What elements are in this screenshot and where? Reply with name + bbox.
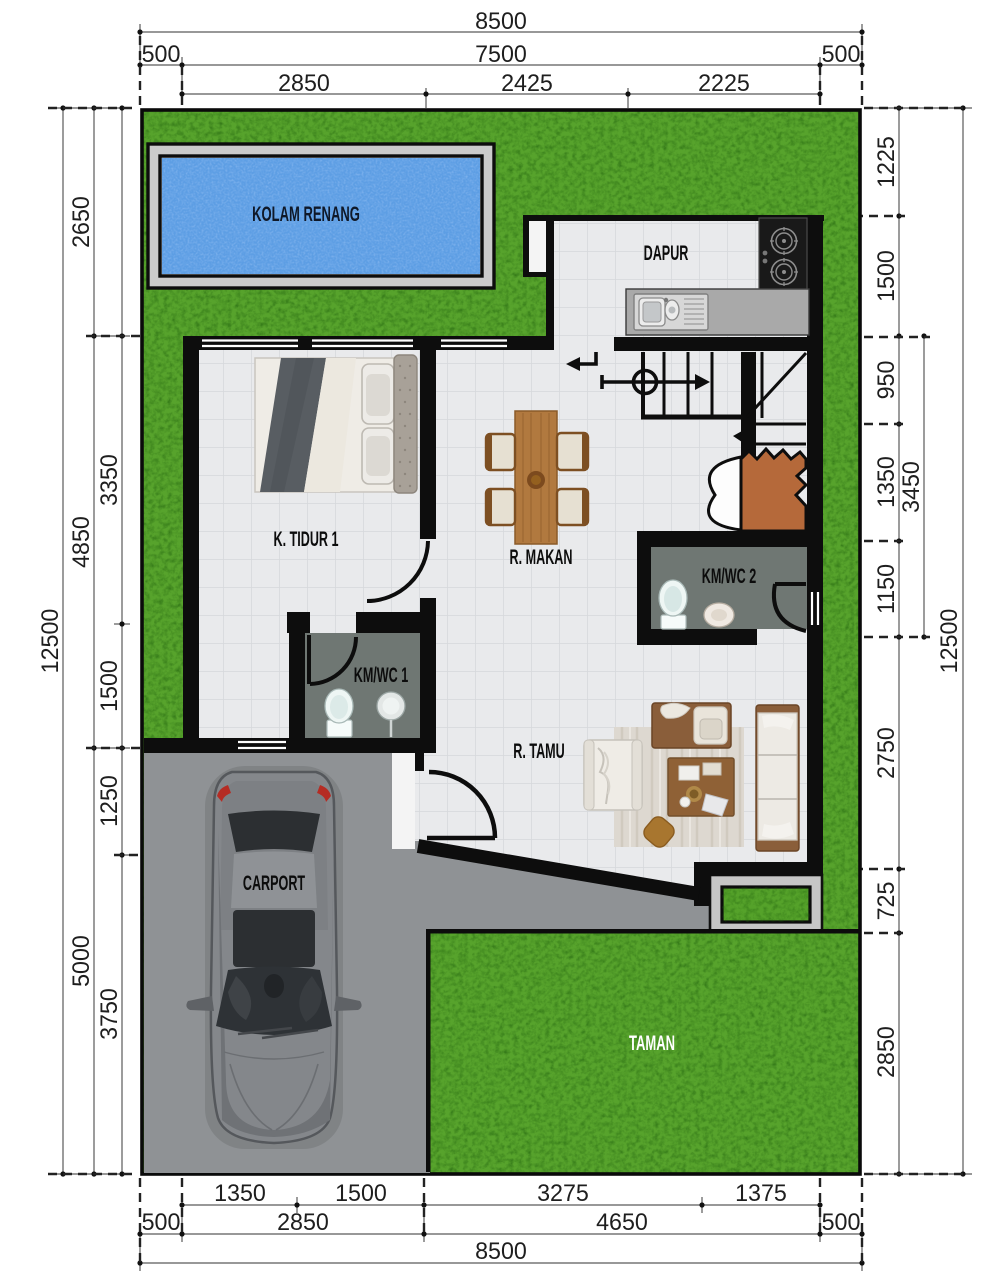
svg-text:1250: 1250: [97, 775, 123, 827]
svg-text:500: 500: [142, 42, 181, 68]
svg-text:3350: 3350: [97, 454, 123, 506]
svg-text:12500: 12500: [937, 609, 963, 674]
svg-text:1350: 1350: [214, 1181, 266, 1207]
svg-text:8500: 8500: [475, 1239, 527, 1265]
svg-text:1500: 1500: [874, 250, 900, 302]
svg-text:500: 500: [822, 1210, 861, 1236]
svg-text:CARPORT: CARPORT: [243, 871, 306, 895]
svg-text:K. TIDUR 1: K. TIDUR 1: [273, 527, 338, 551]
svg-text:725: 725: [874, 882, 900, 921]
svg-text:2225: 2225: [698, 71, 750, 97]
svg-text:4850: 4850: [69, 516, 95, 568]
svg-text:2425: 2425: [501, 71, 553, 97]
svg-text:DAPUR: DAPUR: [644, 241, 689, 265]
svg-text:1150: 1150: [874, 564, 900, 614]
svg-text:7500: 7500: [475, 42, 527, 68]
svg-text:KM/WC 2: KM/WC 2: [702, 564, 757, 588]
svg-text:2850: 2850: [278, 71, 330, 97]
svg-text:2650: 2650: [69, 196, 95, 248]
svg-text:TAMAN: TAMAN: [629, 1031, 675, 1055]
svg-text:1500: 1500: [97, 660, 123, 712]
svg-text:2750: 2750: [874, 727, 900, 779]
svg-text:950: 950: [874, 361, 900, 400]
svg-text:2850: 2850: [874, 1026, 900, 1078]
svg-text:1350: 1350: [874, 456, 900, 508]
svg-text:5000: 5000: [69, 935, 95, 987]
svg-text:500: 500: [142, 1210, 181, 1236]
svg-text:KM/WC 1: KM/WC 1: [354, 663, 409, 687]
svg-text:R. TAMU: R. TAMU: [513, 739, 565, 763]
svg-text:KOLAM RENANG: KOLAM RENANG: [252, 202, 360, 226]
svg-text:3750: 3750: [97, 988, 123, 1040]
svg-text:12500: 12500: [38, 609, 64, 674]
svg-text:R. MAKAN: R. MAKAN: [510, 545, 573, 569]
svg-text:2850: 2850: [277, 1210, 329, 1236]
svg-text:1500: 1500: [335, 1181, 387, 1207]
svg-text:8500: 8500: [475, 9, 527, 35]
svg-text:4650: 4650: [596, 1210, 648, 1236]
svg-text:3275: 3275: [537, 1181, 589, 1207]
svg-text:1225: 1225: [874, 136, 900, 188]
svg-text:1375: 1375: [735, 1181, 787, 1207]
svg-text:3450: 3450: [899, 461, 925, 513]
svg-text:500: 500: [822, 42, 861, 68]
